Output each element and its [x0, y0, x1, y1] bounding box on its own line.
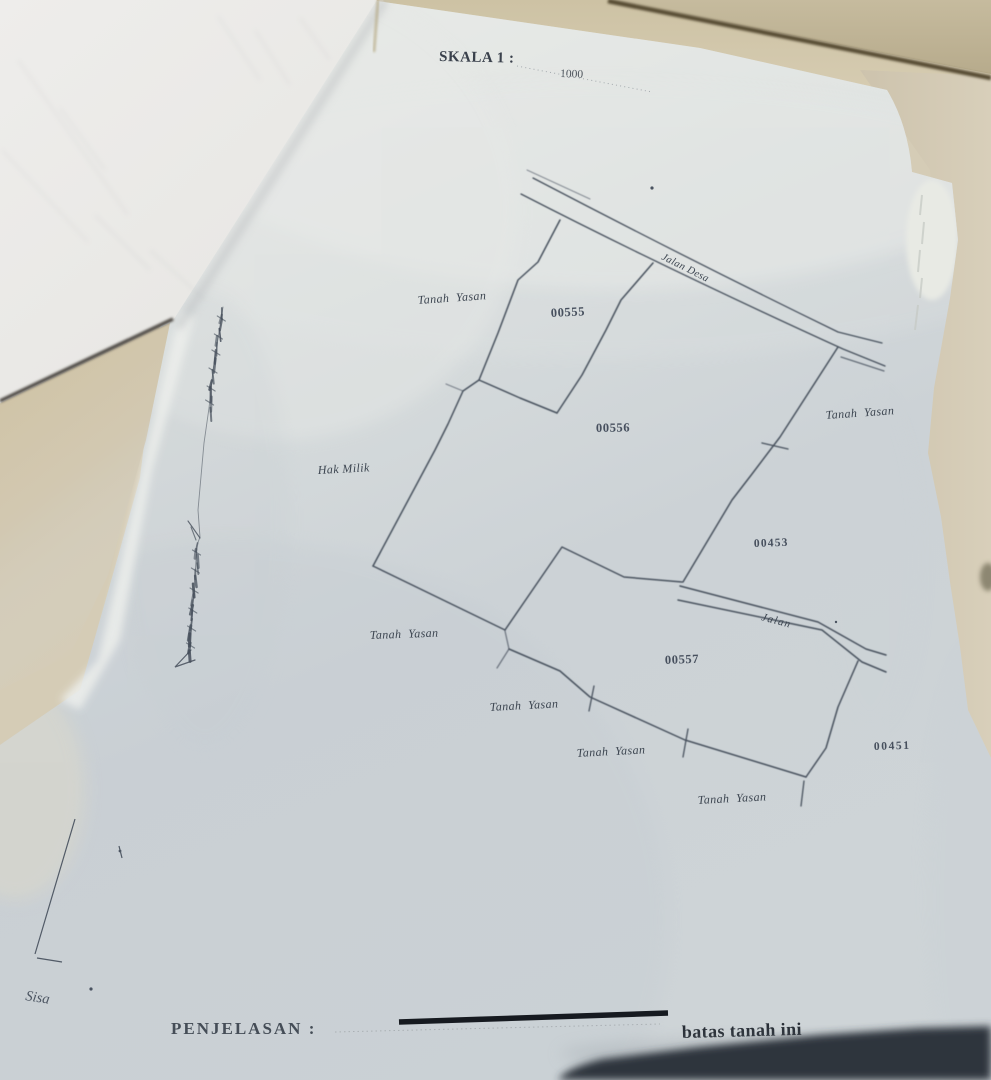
svg-text:1000: 1000	[560, 68, 584, 81]
svg-text:00556: 00556	[596, 420, 630, 435]
svg-text:00453: 00453	[754, 537, 789, 550]
svg-text:Tanah Yasan: Tanah Yasan	[370, 626, 439, 642]
svg-text:00557: 00557	[665, 652, 700, 667]
svg-text:Hak Milik: Hak Milik	[316, 460, 370, 477]
svg-text:PENJELASAN :: PENJELASAN :	[171, 1019, 316, 1038]
svg-text:00555: 00555	[550, 304, 585, 320]
svg-text:00451: 00451	[874, 740, 911, 753]
svg-text:SKALA 1 :: SKALA 1 :	[439, 49, 515, 67]
